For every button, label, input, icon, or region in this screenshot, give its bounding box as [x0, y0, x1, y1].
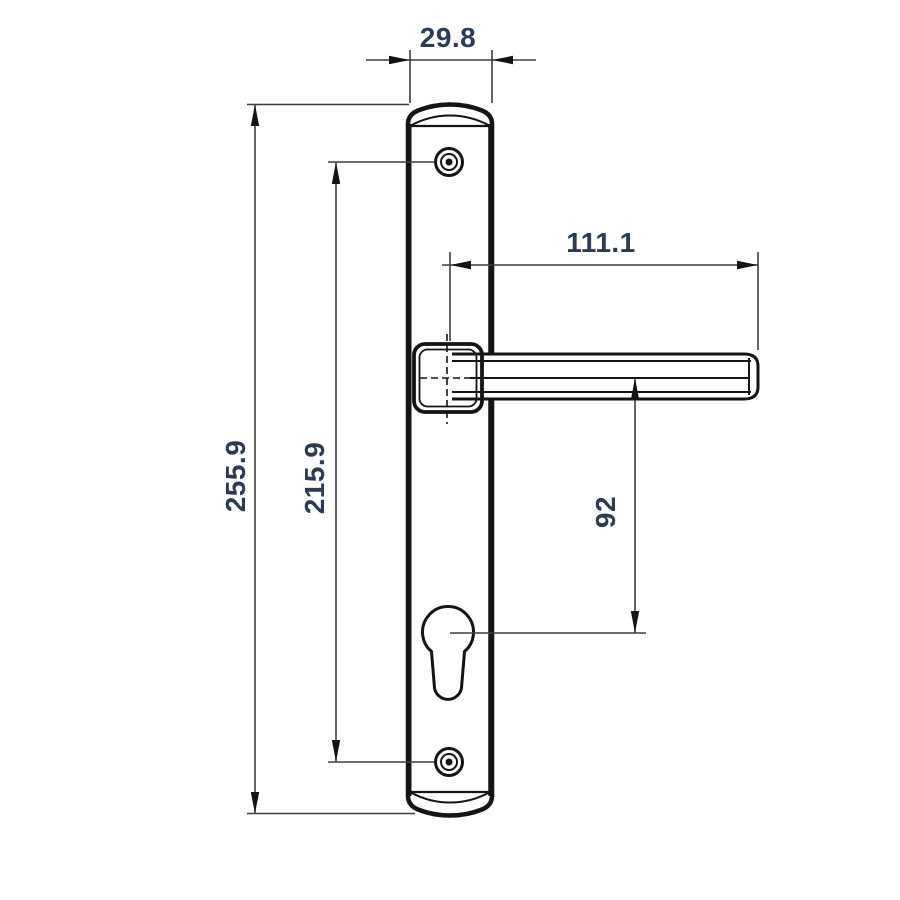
dim-label-lever-to-cylinder: 92 [590, 496, 622, 528]
dimension-plate-width [366, 50, 536, 103]
dimension-overall-height [247, 105, 415, 814]
screw-hole-bottom [436, 749, 463, 776]
dim-label-lever-length: 111.1 [566, 227, 635, 259]
backplate [408, 105, 492, 816]
arrowhead [737, 261, 758, 269]
arrowhead [251, 105, 259, 127]
arrowhead [492, 56, 513, 64]
technical-drawing-canvas: 29.8 111.1 255.9 215.9 92 [0, 0, 900, 900]
backplate-outline [408, 105, 492, 816]
arrowhead [332, 740, 340, 762]
arrowhead [332, 162, 340, 184]
screw-hole-top [436, 149, 463, 176]
dim-label-hole-spacing: 215.9 [299, 442, 331, 515]
arrowhead [631, 611, 639, 633]
arrowhead [251, 792, 259, 814]
handle-lever [452, 354, 758, 399]
door-handle-drawing [0, 0, 900, 900]
dim-label-overall-height: 255.9 [220, 440, 252, 513]
arrowhead [389, 56, 410, 64]
dim-label-plate-width: 29.8 [420, 22, 477, 54]
